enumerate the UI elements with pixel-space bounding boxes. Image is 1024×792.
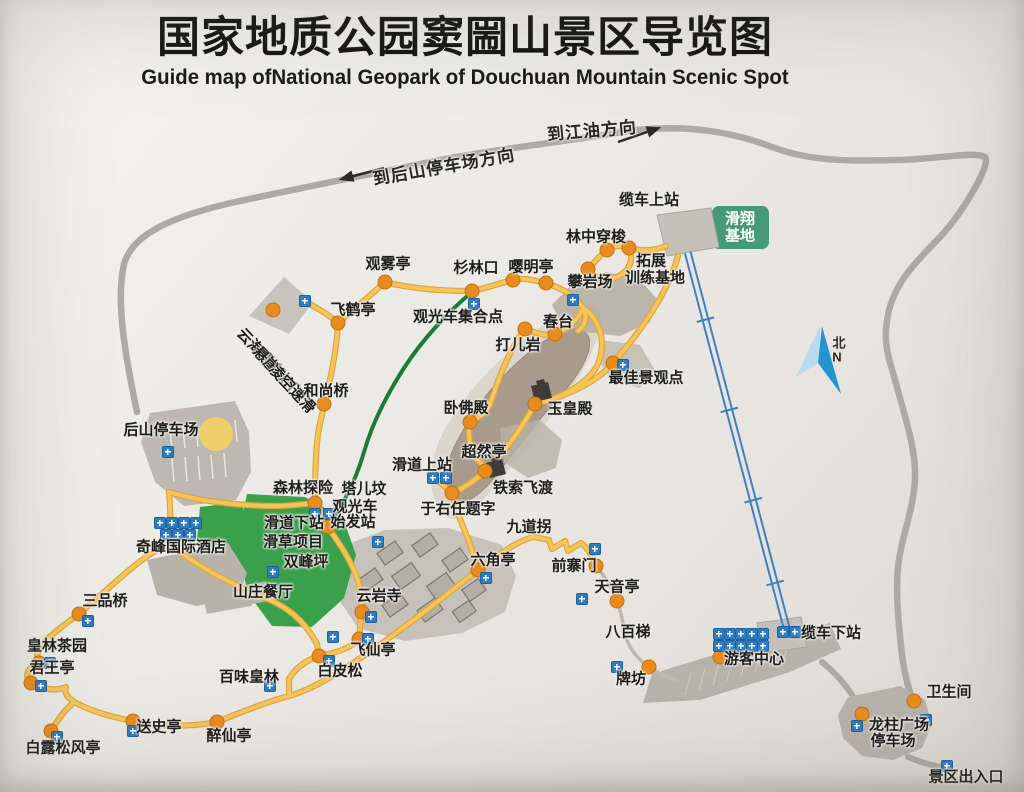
reclining-buddha-hall-dot [463,415,478,430]
cableway-upper-station-label: 缆车上站 [619,193,679,208]
forest-shuttle-label: 林中穿梭 [566,230,626,245]
map-canvas [0,0,1024,792]
restroom-dot [907,694,922,709]
monk-bridge-label: 和尚桥 [303,384,348,399]
page-title: 国家地质公园窦圌山景区导览图 [75,14,855,63]
sightseeing-bus-assembly-point-label: 观光车集合点 [413,310,503,325]
training-base-line2-label: 训练基地 [625,271,685,286]
yunyan-temple-label: 云岩寺 [356,589,401,604]
white-bark-pine-label: 白皮松 [317,664,362,679]
dragon-pillar-plaza-line1-label: 龙柱广场 [869,718,929,733]
restroom-label: 卫生间 [926,685,971,700]
hotel-services-icon-4 [190,517,202,529]
yingming-pavilion-dot [539,276,554,291]
dragon-pillar-plaza-line2-label: 停车场 [870,734,915,749]
baiwei-huanglin-label: 百味皇林 [219,670,279,685]
songshi-pavilion-label: 送史亭 [136,720,181,735]
villa-restaurant-label: 山庄餐厅 [233,585,293,600]
trail-facility-icon [327,631,339,643]
jade-emperor-hall-dot [528,397,543,412]
mist-viewing-pavilion-dot [378,275,393,290]
flying-crane-pavilion-label: 飞鹤亭 [330,303,375,318]
slideway-upper-icon-2 [440,472,452,484]
slideway-upper-station-label: 滑道上站 [392,458,452,473]
front-gate-icon [589,543,601,555]
shanlinkou-label: 杉林口 [453,261,498,276]
yingming-pavilion-label: 嘤明亭 [508,260,553,275]
cableway-lower-icon-1 [777,626,789,638]
parking-roundabout [199,417,233,451]
hotel-services-icon-2 [166,517,178,529]
taerfen-label: 塔儿坟 [341,482,386,497]
grass-skiing-project-label: 滑草项目 [263,535,323,550]
visitor-center-icon-5 [757,628,769,640]
scenic-area-entrance-label: 景区出入口 [928,770,1003,785]
mist-viewing-pavilion-label: 观雾亭 [365,257,410,272]
junwang-pavilion-label: 君王亭 [29,661,74,676]
zuixian-pavilion-label: 醉仙亭 [206,729,251,744]
memorial-archway-label: 牌坊 [616,672,646,687]
hotel-services-icon-1 [154,517,166,529]
bus-departure-line2-label: 始发站 [330,515,375,530]
chaoran-pavilion-label: 超然亭 [461,445,506,460]
compass-north-cn-label: 北 [832,337,845,350]
daer-rock-label: 打儿岩 [495,338,540,353]
yu-youren-inscription-dot [445,486,460,501]
junwang-icon [35,680,47,692]
bus-departure-line1-label: 观光车 [332,500,377,515]
eight-hundred-steps-label: 八百梯 [605,625,650,640]
tianyin-icon [576,593,588,605]
compass-north-en-label: N [832,351,841,364]
rear-parking-area [141,401,251,506]
villa-restaurant-icon [267,566,279,578]
page-subtitle: Guide map ofNational Geopark of Douchuan… [87,66,844,90]
cloud-sea-walk-dot [266,303,281,318]
qifeng-international-hotel-label: 奇峰国际酒店 [136,540,226,555]
twin-peaks-flat-label: 双峰坪 [283,555,328,570]
nine-bends-label: 九道拐 [506,520,551,535]
best-viewpoint-label: 最佳景观点 [608,371,683,386]
gliding-base-line2-label: 基地 [725,229,755,244]
chaoran-pavilion-dot [478,464,493,479]
gliding-base-line1-label: 滑翔 [725,212,755,227]
shanlinkou-dot [465,284,480,299]
training-base-line1-label: 拓展 [636,254,666,269]
hotel-services-icon-3 [178,517,190,529]
rock-climbing-field-label: 攀岩场 [567,275,612,290]
slideway-upper-icon-1 [427,472,439,484]
map-header: 国家地质公园窦圌山景区导览图 Guide map ofNational Geop… [75,14,855,90]
daer-rock-dot [518,322,533,337]
jade-emperor-hall-label: 玉皇殿 [547,402,592,417]
huanglin-tea-garden-label: 皇林茶园 [27,639,87,654]
cloud-sea-walk-icon [299,295,311,307]
cableway-lower-station-label: 缆车下站 [801,626,861,641]
tianyin-pavilion-label: 天音亭 [594,580,639,595]
temple-facility-icon [372,536,384,548]
reclining-buddha-hall-label: 卧佛殿 [443,401,488,416]
slideway-lower-station-label: 滑道下站 [264,516,324,531]
iron-cable-crossing-label: 铁索飞渡 [493,481,553,496]
hexagon-icon [480,572,492,584]
cableway-lower-icon-2 [789,626,801,638]
cableway-line [685,252,790,630]
guide-map-board: 缆车上站滑翔基地林中穿梭拓展训练基地攀岩场嘤明亭杉林口观雾亭飞鹤亭观光车集合点春… [0,0,1024,792]
dragon-plaza-icon [851,720,863,732]
sanpin-icon [82,615,94,627]
front-stockade-gate-label: 前寨门 [551,559,596,574]
yunyan-icon [365,611,377,623]
hexagonal-pavilion-label: 六角亭 [470,553,515,568]
bailu-songfeng-pavilion-label: 白露松风亭 [25,741,100,756]
yu-youren-inscription-label: 于右任题字 [420,502,495,517]
tianyin-pavilion-dot [610,594,625,609]
visitor-center-label: 游客中心 [724,652,784,667]
spring-terrace-label: 春台 [543,315,573,330]
feixian-pavilion-label: 飞仙亭 [350,643,395,658]
rear-parking-icon [162,446,174,458]
sanpin-bridge-label: 三品桥 [82,594,127,609]
rear-mountain-parking-label: 后山停车场 [123,423,198,438]
climbing-area-icon [567,294,579,306]
forest-adventure-label: 森林探险 [273,481,333,496]
